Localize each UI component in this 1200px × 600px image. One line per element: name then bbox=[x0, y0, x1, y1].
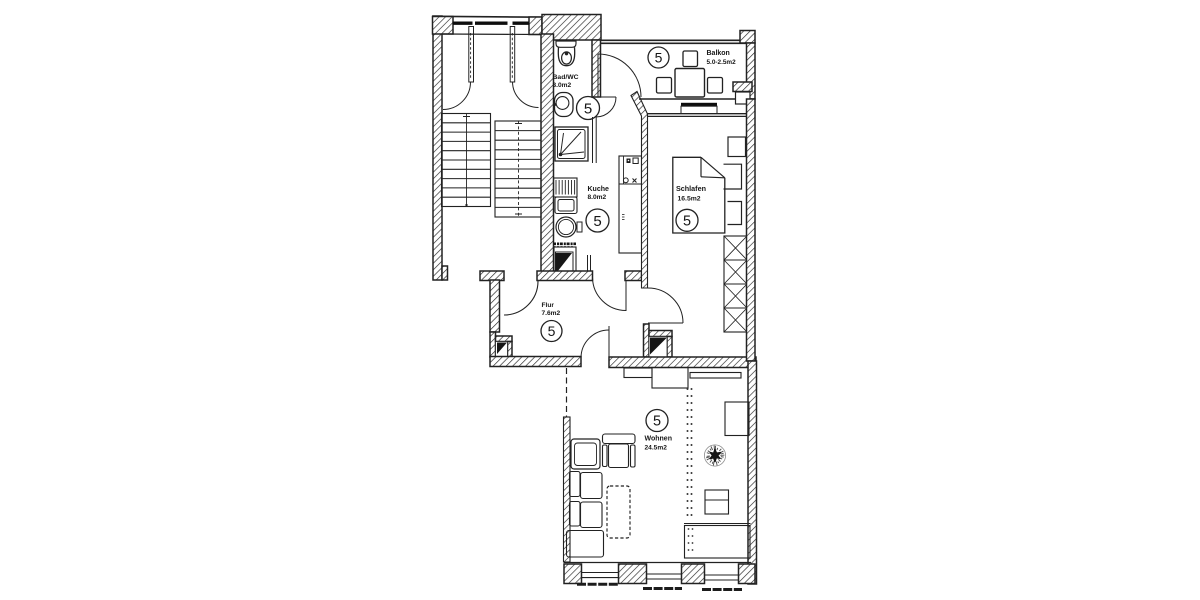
svg-text:5: 5 bbox=[653, 414, 661, 430]
svg-text:24.5m2: 24.5m2 bbox=[645, 445, 668, 452]
svg-text:Flur: Flur bbox=[542, 302, 555, 309]
svg-text:5: 5 bbox=[593, 213, 601, 230]
svg-text:Wohnen: Wohnen bbox=[645, 436, 672, 443]
svg-text:5: 5 bbox=[584, 100, 592, 117]
svg-text:5: 5 bbox=[683, 214, 691, 230]
svg-text:Balkon: Balkon bbox=[707, 50, 730, 57]
svg-text:7.6m2: 7.6m2 bbox=[542, 310, 561, 317]
svg-text:5.0-2.5m2: 5.0-2.5m2 bbox=[707, 59, 737, 66]
svg-text:Kuche: Kuche bbox=[588, 186, 610, 193]
svg-text:Schlafen: Schlafen bbox=[676, 184, 706, 193]
svg-text:16.5m2: 16.5m2 bbox=[678, 196, 701, 203]
svg-text:3.0m2: 3.0m2 bbox=[553, 82, 572, 89]
svg-text:Bad/WC: Bad/WC bbox=[553, 74, 579, 81]
svg-text:5: 5 bbox=[655, 50, 663, 66]
svg-text:5: 5 bbox=[548, 323, 556, 339]
svg-text:8.0m2: 8.0m2 bbox=[588, 194, 607, 201]
